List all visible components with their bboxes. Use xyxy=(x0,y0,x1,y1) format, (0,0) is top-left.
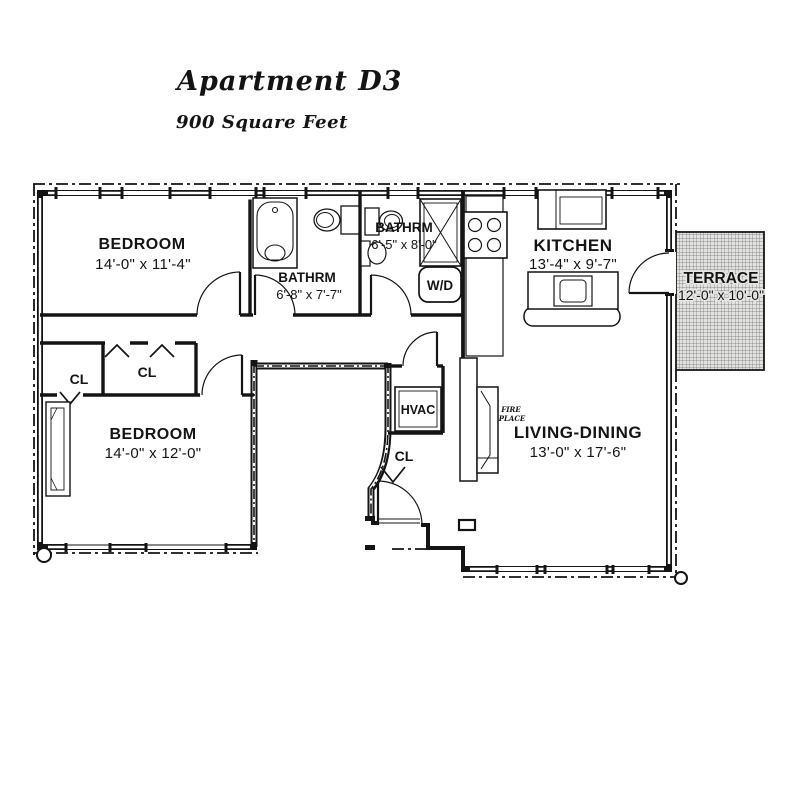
room-label-bathrm-1: BATHRM xyxy=(278,270,336,285)
room-dims-bedroom-2: 14'-0" x 12'-0" xyxy=(105,445,202,462)
room-label-kitchen: KITCHEN xyxy=(533,236,612,255)
bedroom2-window-seat xyxy=(46,402,70,496)
fireplace xyxy=(460,358,498,481)
room-dims-living-dining: 13'-0" x 17'-6" xyxy=(530,444,627,461)
room-label-bedroom-2: BEDROOM xyxy=(109,426,196,443)
room-label-living-dining: LIVING-DINING xyxy=(514,423,642,442)
hvac-label: HVAC xyxy=(401,403,436,417)
room-dims-bathrm-2: 6'-5" x 8'-0" xyxy=(371,237,437,252)
fireplace-label-line2: PLACE xyxy=(498,414,526,423)
bathtub xyxy=(253,198,297,268)
room-label-terrace: TERRACE xyxy=(684,270,759,287)
closet-label-2: CL xyxy=(138,364,157,380)
washer-dryer-label: W/D xyxy=(427,278,453,293)
entry-threshold xyxy=(365,516,475,550)
room-dims-bathrm-1: 6'-8" x 7'-7" xyxy=(276,287,342,302)
closet-label-1: CL xyxy=(70,371,89,387)
stove xyxy=(464,212,507,258)
room-label-bathrm-2: BATHRM xyxy=(375,220,433,235)
closet-label-entry: CL xyxy=(395,448,414,464)
fireplace-label-line1: FIRE xyxy=(500,405,521,414)
terrace-door-opening xyxy=(663,249,676,296)
kitchen-island-sink xyxy=(524,272,620,326)
room-dims-bedroom-1: 14'-0" x 11'-4" xyxy=(95,256,191,273)
room-dims-terrace: 12'-0" x 10'-0" xyxy=(678,287,764,303)
floor-plan-page: Apartment D3 900 Square Feet xyxy=(0,0,800,800)
refrigerator xyxy=(538,190,606,229)
room-dims-kitchen: 13'-4" x 9'-7" xyxy=(529,256,617,273)
floor-plan-drawing: BEDROOM 14'-0" x 11'-4" BATHRM 6'-8" x 7… xyxy=(0,0,800,800)
toilet-bath1 xyxy=(314,206,359,234)
room-label-bedroom-1: BEDROOM xyxy=(98,236,185,253)
